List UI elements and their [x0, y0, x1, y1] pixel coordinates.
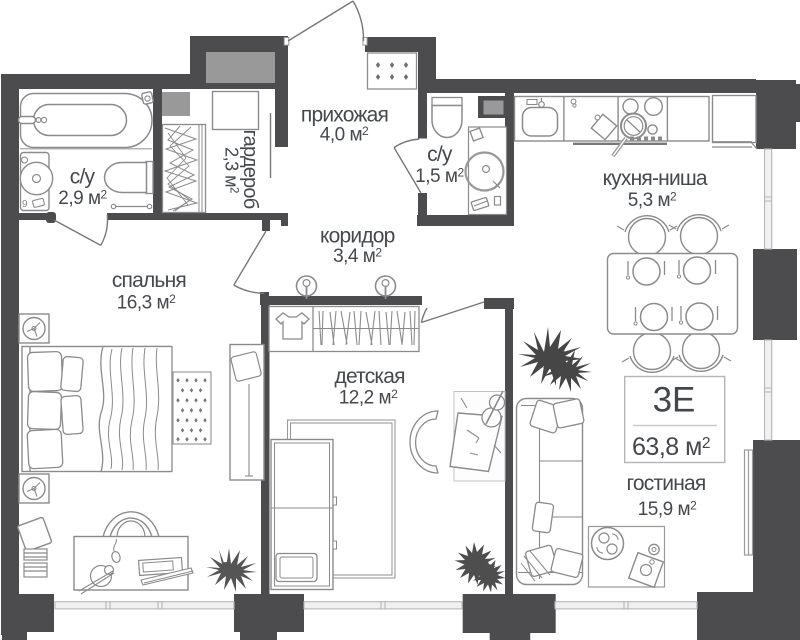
svg-text:4,0 м2: 4,0 м2	[320, 124, 369, 146]
svg-text:16,3 м2: 16,3 м2	[117, 292, 176, 314]
svg-text:кухня-ниша: кухня-ниша	[603, 167, 708, 190]
svg-text:15,9 м2: 15,9 м2	[638, 499, 697, 521]
svg-text:коридор: коридор	[320, 225, 395, 248]
svg-text:с/у: с/у	[70, 165, 96, 188]
svg-text:спальня: спальня	[112, 269, 186, 292]
svg-text:12,2 м2: 12,2 м2	[339, 387, 398, 409]
svg-text:5,3 м2: 5,3 м2	[628, 190, 677, 212]
svg-text:63,8 м2: 63,8 м2	[632, 433, 710, 461]
svg-text:1,5 м2: 1,5 м2	[415, 166, 464, 188]
svg-text:2,3 м2: 2,3 м2	[222, 147, 242, 193]
svg-text:детская: детская	[334, 365, 404, 388]
svg-text:2,9 м2: 2,9 м2	[58, 188, 107, 210]
svg-text:9: 9	[22, 199, 28, 210]
svg-text:3,4 м2: 3,4 м2	[333, 246, 382, 268]
svg-text:прихожая: прихожая	[301, 103, 388, 126]
svg-text:3Е: 3Е	[653, 381, 696, 420]
svg-text:гостиная: гостиная	[627, 472, 706, 495]
svg-text:с/у: с/у	[427, 143, 453, 166]
